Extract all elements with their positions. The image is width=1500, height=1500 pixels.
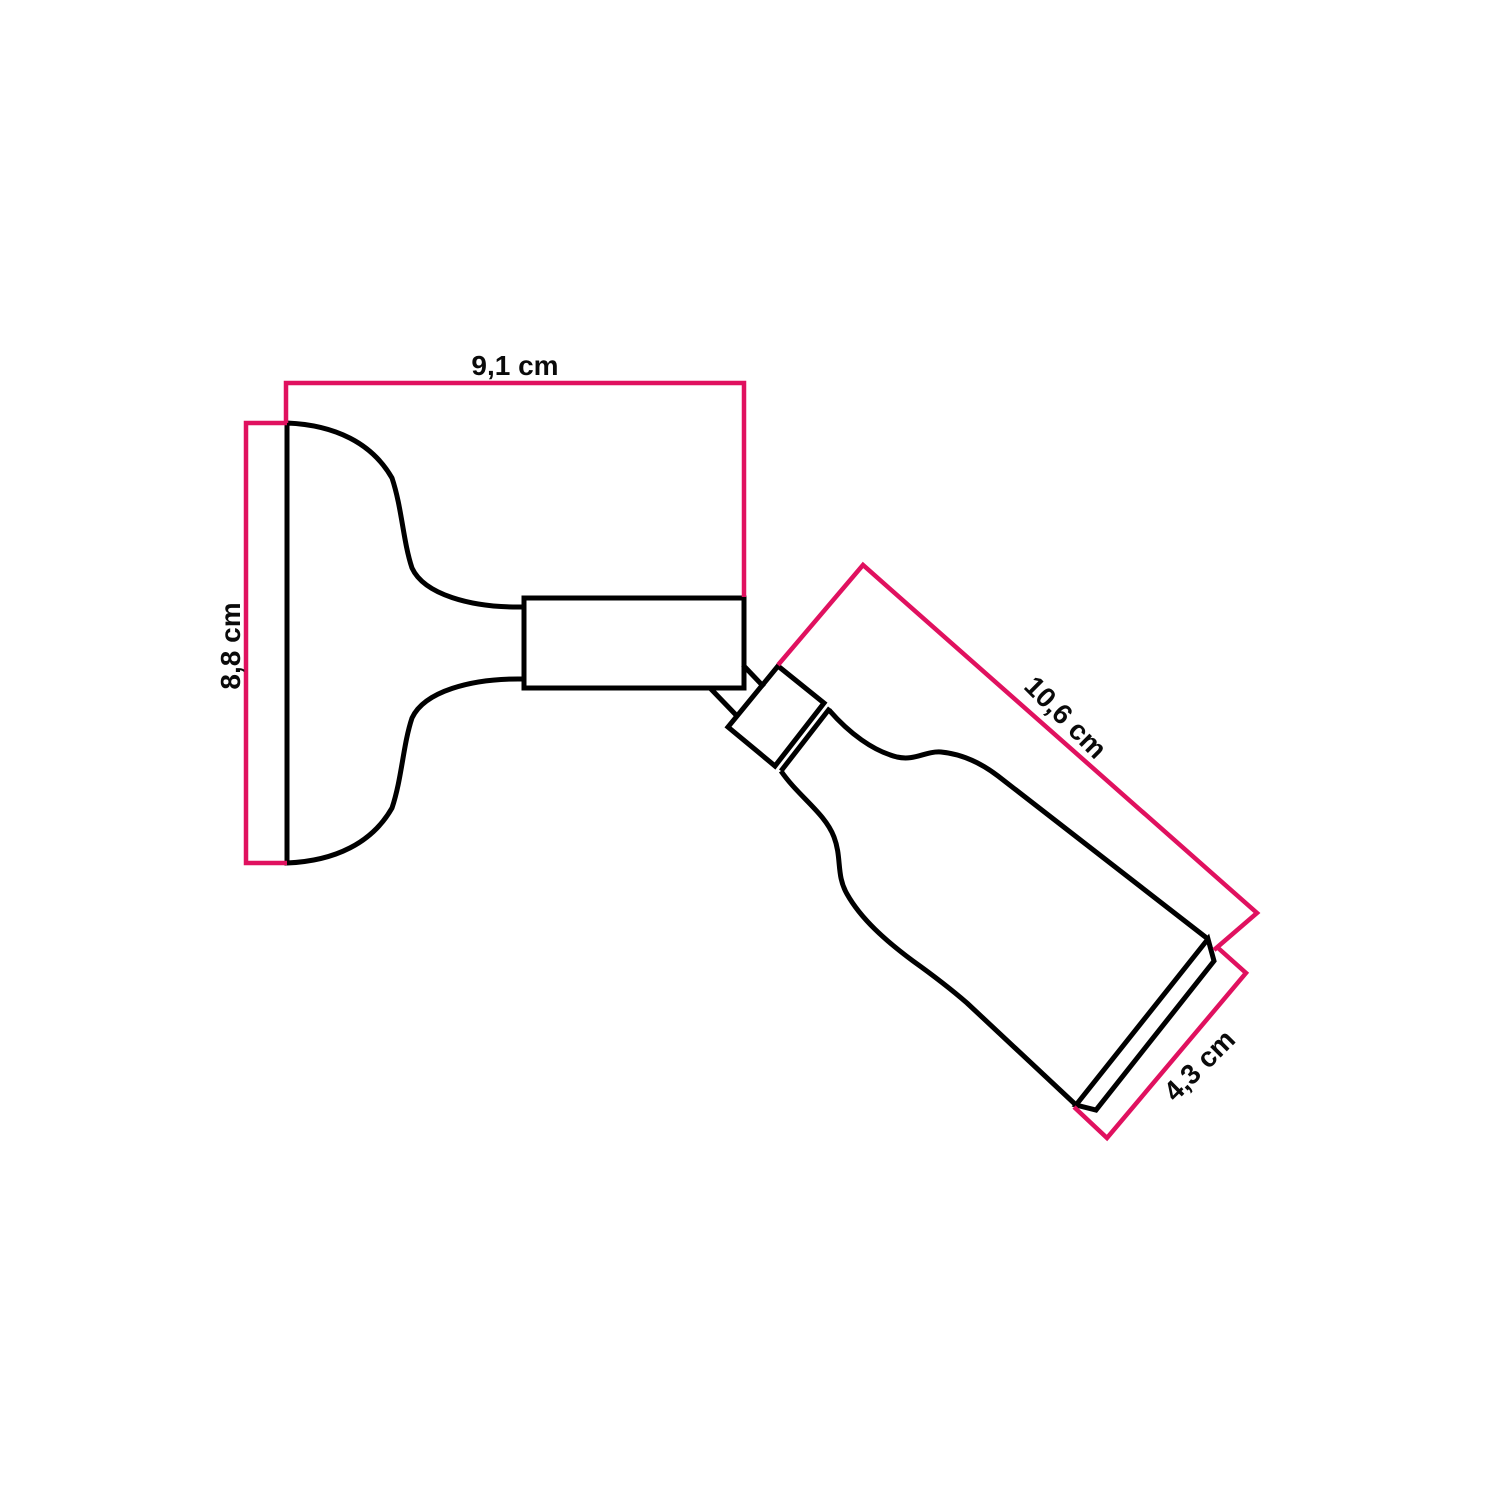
dimension-line-width xyxy=(286,383,744,597)
dimension-line-length xyxy=(778,565,1257,950)
joint-collar-line xyxy=(781,708,830,771)
dimension-line-height xyxy=(246,423,287,863)
dimension-label-width: 9,1 cm xyxy=(471,350,558,381)
dimension-drawing-canvas: 9,1 cm 8,8 cm 10,6 cm 4,3 cm xyxy=(0,0,1500,1500)
wall-lamp-dimension-drawing: 9,1 cm 8,8 cm 10,6 cm 4,3 cm xyxy=(0,0,1500,1500)
lamp-holder-top-profile xyxy=(829,710,1208,939)
hinge-pin-line-lower xyxy=(710,688,737,716)
dimension-label-height: 8,8 cm xyxy=(215,602,246,689)
arm-cylinder xyxy=(524,598,744,688)
lamp-holder-bottom-profile xyxy=(781,771,1076,1105)
wall-plate-outline xyxy=(287,423,524,863)
